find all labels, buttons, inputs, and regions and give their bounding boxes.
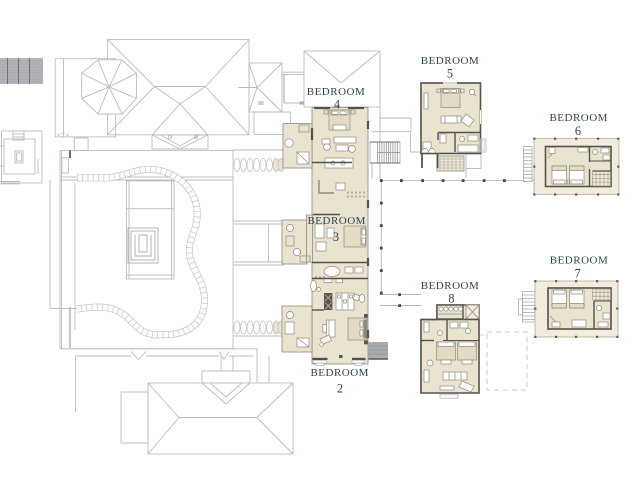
svg-text:BEDROOM: BEDROOM — [310, 367, 369, 379]
svg-text:7: 7 — [575, 267, 581, 281]
svg-text:BEDROOM: BEDROOM — [421, 280, 480, 292]
svg-text:3: 3 — [333, 230, 339, 244]
svg-text:6: 6 — [575, 124, 581, 138]
svg-text:2: 2 — [337, 382, 343, 396]
svg-text:4: 4 — [334, 98, 340, 112]
svg-text:BEDROOM: BEDROOM — [307, 215, 366, 227]
svg-text:BEDROOM: BEDROOM — [421, 55, 480, 67]
svg-text:BEDROOM: BEDROOM — [550, 255, 609, 267]
svg-text:BEDROOM: BEDROOM — [307, 86, 366, 98]
svg-text:BEDROOM: BEDROOM — [549, 112, 608, 124]
svg-text:5: 5 — [447, 67, 453, 81]
svg-text:8: 8 — [448, 292, 454, 306]
